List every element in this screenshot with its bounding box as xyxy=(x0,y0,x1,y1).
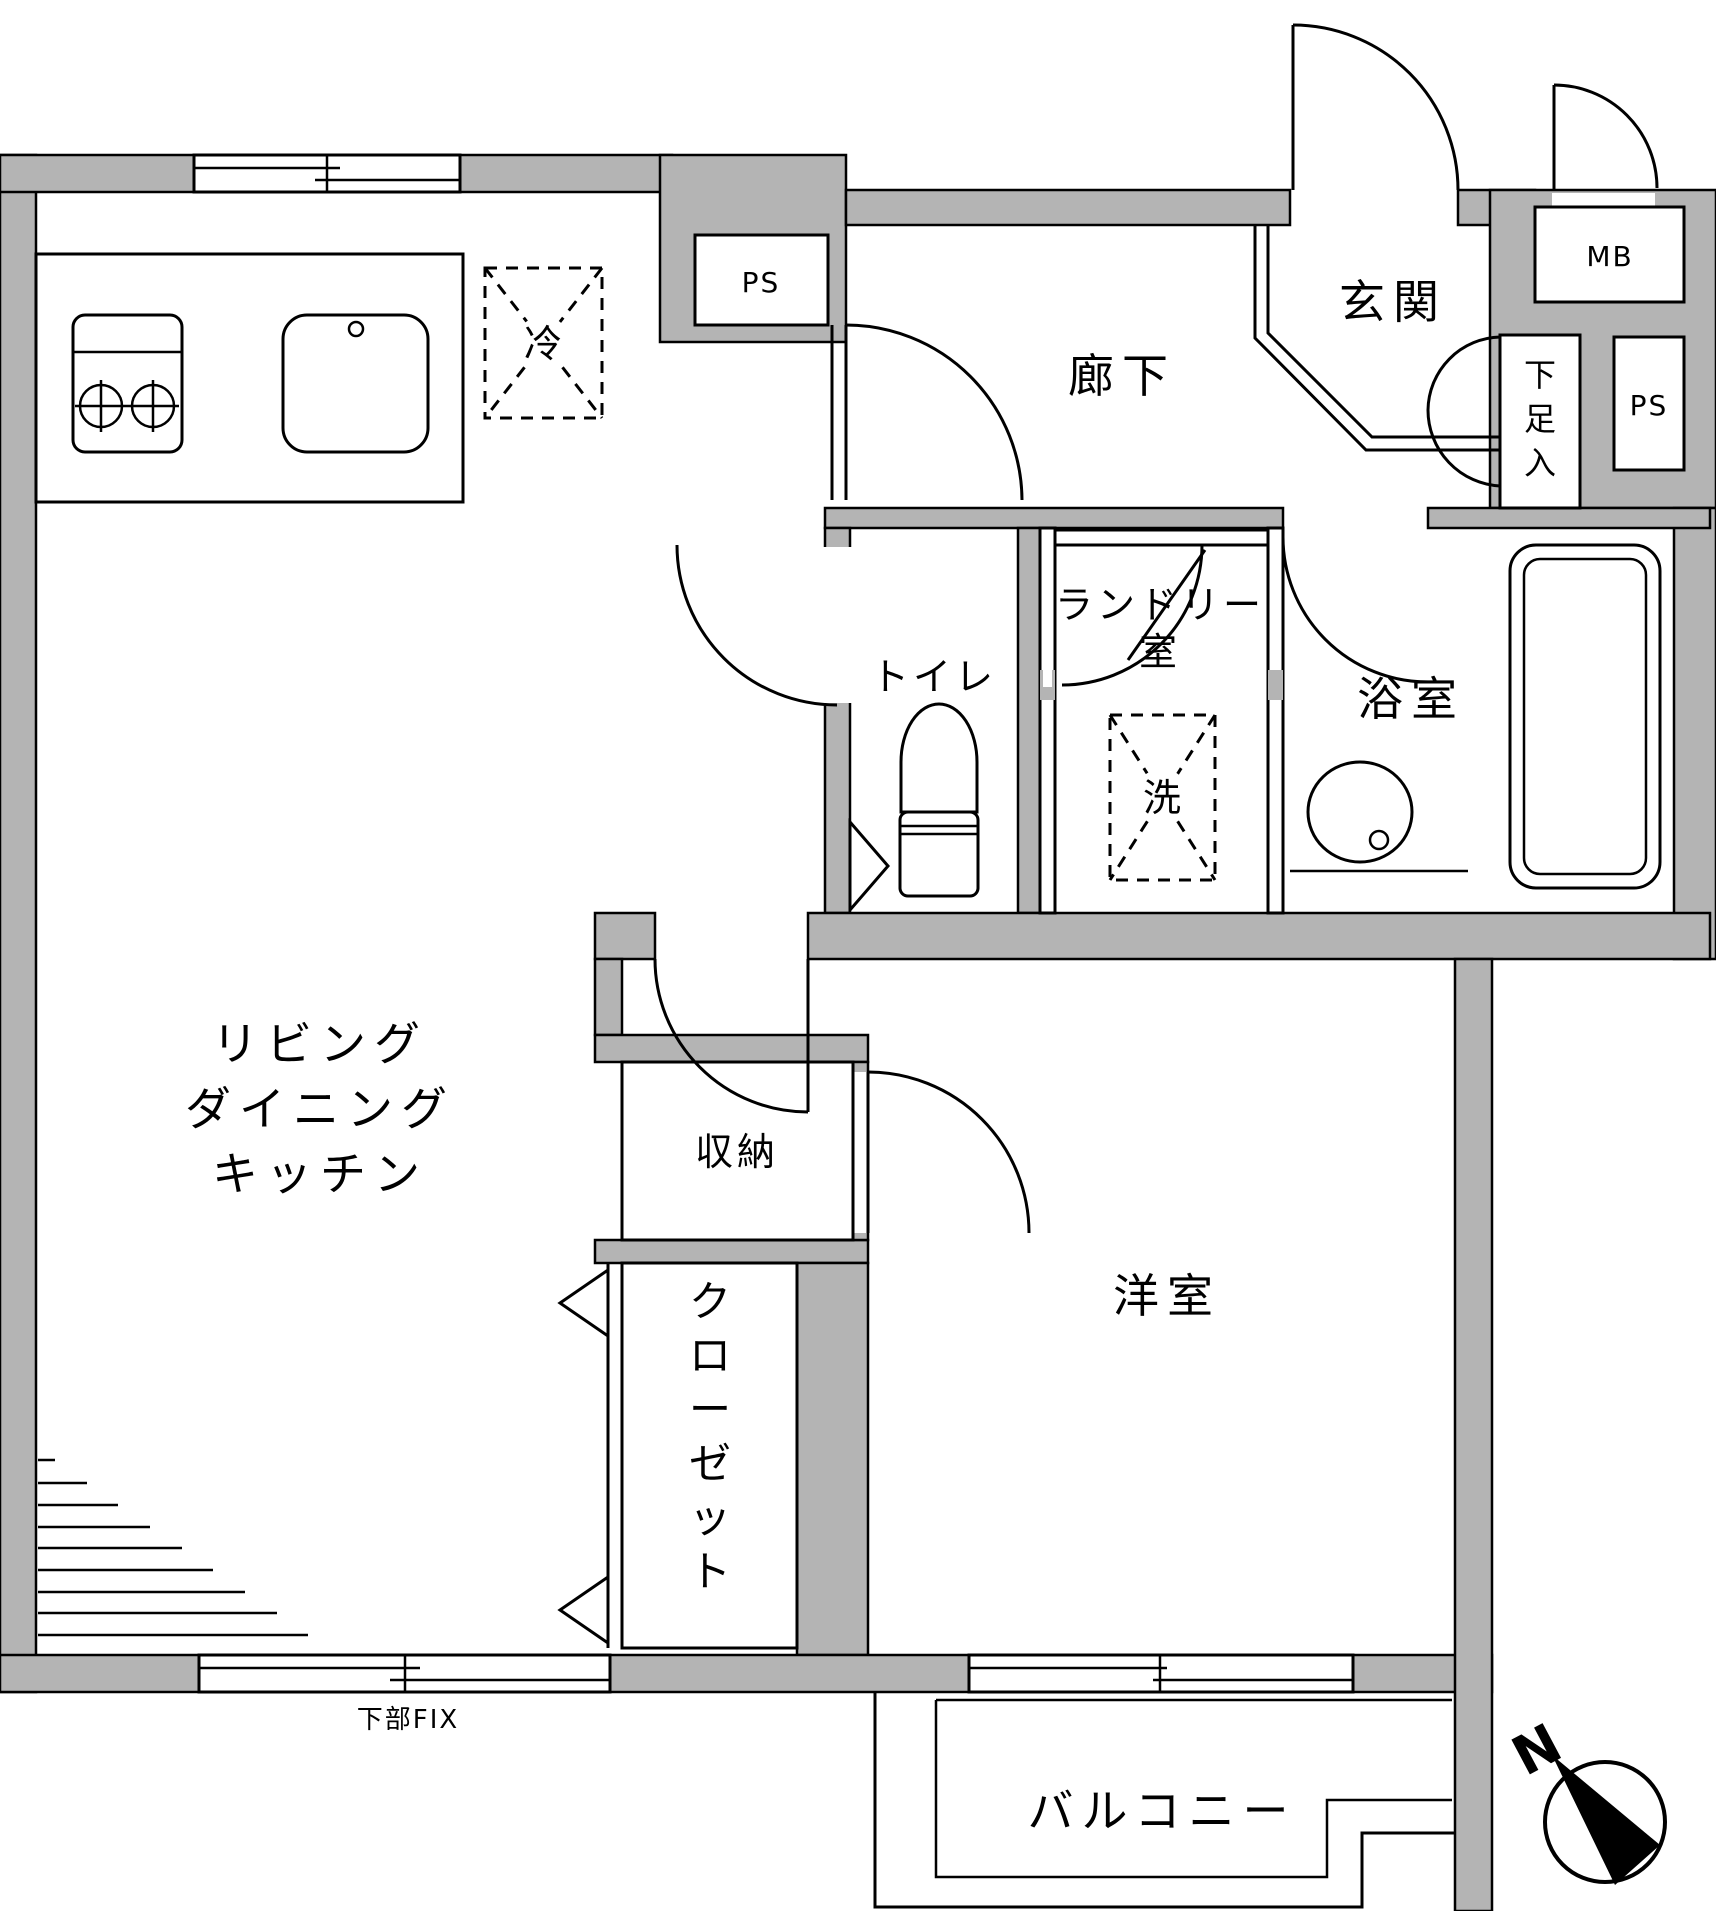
laundry-label-line1: ランドリー xyxy=(1055,583,1265,627)
bath-door xyxy=(1283,537,1428,682)
wall-nook-left xyxy=(595,959,622,1035)
compass: N xyxy=(1502,1711,1665,1885)
bathtub-outer xyxy=(1510,545,1660,888)
wall-right-bedroom xyxy=(1455,959,1492,1911)
laundry-wall-stub-right xyxy=(1268,670,1283,700)
toilet-tank xyxy=(900,812,978,896)
wall-left xyxy=(0,155,36,1692)
stove xyxy=(73,315,182,452)
wall-closet-right xyxy=(797,1263,868,1655)
wall-top-hall xyxy=(846,190,1290,225)
closet-bifold-marker-top xyxy=(560,1270,608,1336)
wall-midband-bottom xyxy=(808,913,1710,959)
pipe-space-top-label: PS xyxy=(742,266,781,299)
svg-text:入: 入 xyxy=(1524,444,1556,482)
toilet-label: トイレ xyxy=(871,655,997,699)
wall-laundry-top-thin xyxy=(1055,530,1268,545)
washer-label: 洗 xyxy=(1143,776,1181,820)
kitchen-sink xyxy=(283,315,428,452)
kitchen-window xyxy=(194,155,460,192)
fridge-label: 冷 xyxy=(524,322,562,366)
western-room-label: 洋室 xyxy=(1113,1269,1221,1323)
meter-box-label: MB xyxy=(1586,240,1633,273)
floor-plan: 冷 洗 N xyxy=(0,0,1716,1911)
ldk-label-line2: ダイニング xyxy=(185,1082,455,1136)
svg-text:ト: ト xyxy=(689,1547,731,1596)
wall-bottom-mid xyxy=(610,1655,969,1692)
entrance-label: 玄関 xyxy=(1339,275,1447,329)
hallway-label: 廊下 xyxy=(1068,349,1176,403)
hallway-door xyxy=(832,325,1022,500)
toilet-bowl xyxy=(901,704,977,812)
wall-midband-top-left xyxy=(825,508,1283,528)
svg-text:ッ: ッ xyxy=(689,1493,731,1542)
wall-right-bath xyxy=(1674,508,1716,959)
wall-storage-top xyxy=(595,1035,868,1062)
wall-storage-bottom xyxy=(595,1240,868,1263)
pipe-space-right-label: PS xyxy=(1630,389,1669,422)
svg-text:足: 足 xyxy=(1524,400,1556,438)
toilet-door xyxy=(677,545,888,910)
svg-text:ロ: ロ xyxy=(689,1331,731,1380)
bath-sink xyxy=(1308,762,1412,862)
wall-bottom-left xyxy=(0,1655,199,1692)
ldk-label-line3: キッチン xyxy=(212,1147,428,1201)
entrance-door xyxy=(1293,25,1458,190)
closet-bifold-marker-bottom xyxy=(560,1577,608,1643)
refrigerator-mark: 冷 xyxy=(485,268,602,418)
wall-top-2 xyxy=(460,155,672,192)
wall-bedroom-door-left xyxy=(595,913,655,959)
washer-mark: 洗 xyxy=(1110,715,1215,880)
bedroom-balcony-window xyxy=(969,1655,1353,1692)
shoe-storage-label: 下 足 入 xyxy=(1524,356,1556,482)
floor-plan-page: 冷 洗 N xyxy=(0,0,1716,1911)
bath-fixtures xyxy=(1290,545,1660,888)
laundry-label-line2: 室 xyxy=(1139,630,1181,674)
bathroom-label: 浴室 xyxy=(1357,672,1465,726)
balcony-label: バルコニー xyxy=(1027,1784,1296,1838)
compass-north-label: N xyxy=(1502,1711,1571,1788)
svg-text:ク: ク xyxy=(689,1277,731,1326)
toilet-door-swing-marker xyxy=(850,822,888,910)
entrance-step xyxy=(1255,225,1500,450)
left-louver-lines xyxy=(38,1460,308,1635)
svg-text:ゼ: ゼ xyxy=(689,1439,731,1488)
closet-bifold-door xyxy=(560,1263,622,1648)
bath-door-opening xyxy=(1286,506,1426,530)
storage-door xyxy=(868,1072,1029,1233)
toilet-fixture xyxy=(900,704,978,896)
wall-toilet-right xyxy=(1018,528,1040,913)
svg-text:下: 下 xyxy=(1524,356,1556,394)
ldk-bottom-window xyxy=(199,1655,610,1692)
lower-fix-label: 下部FIX xyxy=(357,1705,459,1735)
ldk-label-line1: リビング xyxy=(212,1017,428,1071)
mb-door xyxy=(1554,85,1657,190)
wall-laundry-bath-thin xyxy=(1268,528,1283,913)
wall-midband-top-right xyxy=(1428,508,1710,528)
kitchen-fixtures: 冷 xyxy=(36,254,602,502)
wall-top-1 xyxy=(0,155,194,192)
laundry-door-opening xyxy=(1043,547,1052,687)
svg-text:ー: ー xyxy=(689,1385,731,1434)
toilet-door-opening xyxy=(823,547,852,703)
storage-label: 収納 xyxy=(695,1130,779,1174)
